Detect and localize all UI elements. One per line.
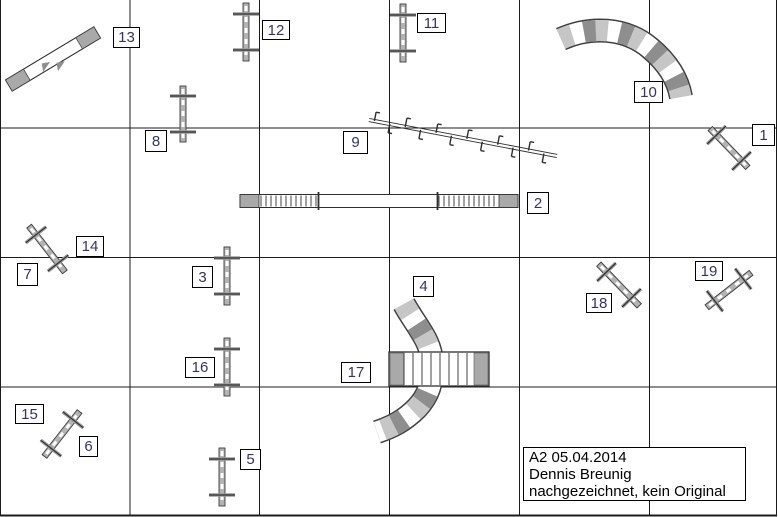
jump-12 xyxy=(233,3,259,61)
jump-8 xyxy=(170,86,196,142)
jump-5 xyxy=(209,448,235,506)
obstacle-number-1: 1 xyxy=(752,124,775,146)
obstacle-number-14: 14 xyxy=(76,236,104,257)
jump-11 xyxy=(390,4,416,62)
obstacle-number-15: 15 xyxy=(15,404,44,424)
agility-course-diagram: 12345678910111213141516171819 A2 05.04.2… xyxy=(0,0,778,517)
obstacle-number-13: 13 xyxy=(113,27,140,48)
obstacle-number-19: 19 xyxy=(695,261,723,281)
obstacle-number-7: 7 xyxy=(17,263,38,286)
obstacle-number-2: 2 xyxy=(527,192,549,214)
obstacle-number-10: 10 xyxy=(634,81,663,103)
obstacle-number-4: 4 xyxy=(413,276,434,297)
obstacle-number-18: 18 xyxy=(586,293,612,313)
obstacle-number-16: 16 xyxy=(185,357,215,378)
obstacle-number-9: 9 xyxy=(343,131,368,154)
obstacle-number-8: 8 xyxy=(145,130,167,152)
obstacle-number-6: 6 xyxy=(79,436,98,457)
seesaw-13 xyxy=(6,27,104,97)
obstacle-number-5: 5 xyxy=(240,449,261,470)
course-traced-note: nachgezeichnet, kein Original xyxy=(529,483,740,500)
jump-3 xyxy=(214,247,240,305)
course-canvas xyxy=(0,0,778,517)
tunnel-10 xyxy=(561,30,681,97)
course-designer-name: Dennis Breunig xyxy=(529,466,740,483)
course-class-date: A2 05.04.2014 xyxy=(529,449,740,466)
obstacle-number-12: 12 xyxy=(262,20,290,40)
course-info-box: A2 05.04.2014 Dennis Breunig nachgezeich… xyxy=(523,447,746,501)
obstacle-number-17: 17 xyxy=(341,362,371,383)
dogwalk-2 xyxy=(240,192,518,210)
weave-9 xyxy=(369,112,558,163)
obstacle-number-11: 11 xyxy=(417,13,446,33)
obstacle-number-3: 3 xyxy=(192,266,213,288)
aframe-17 xyxy=(389,352,489,386)
